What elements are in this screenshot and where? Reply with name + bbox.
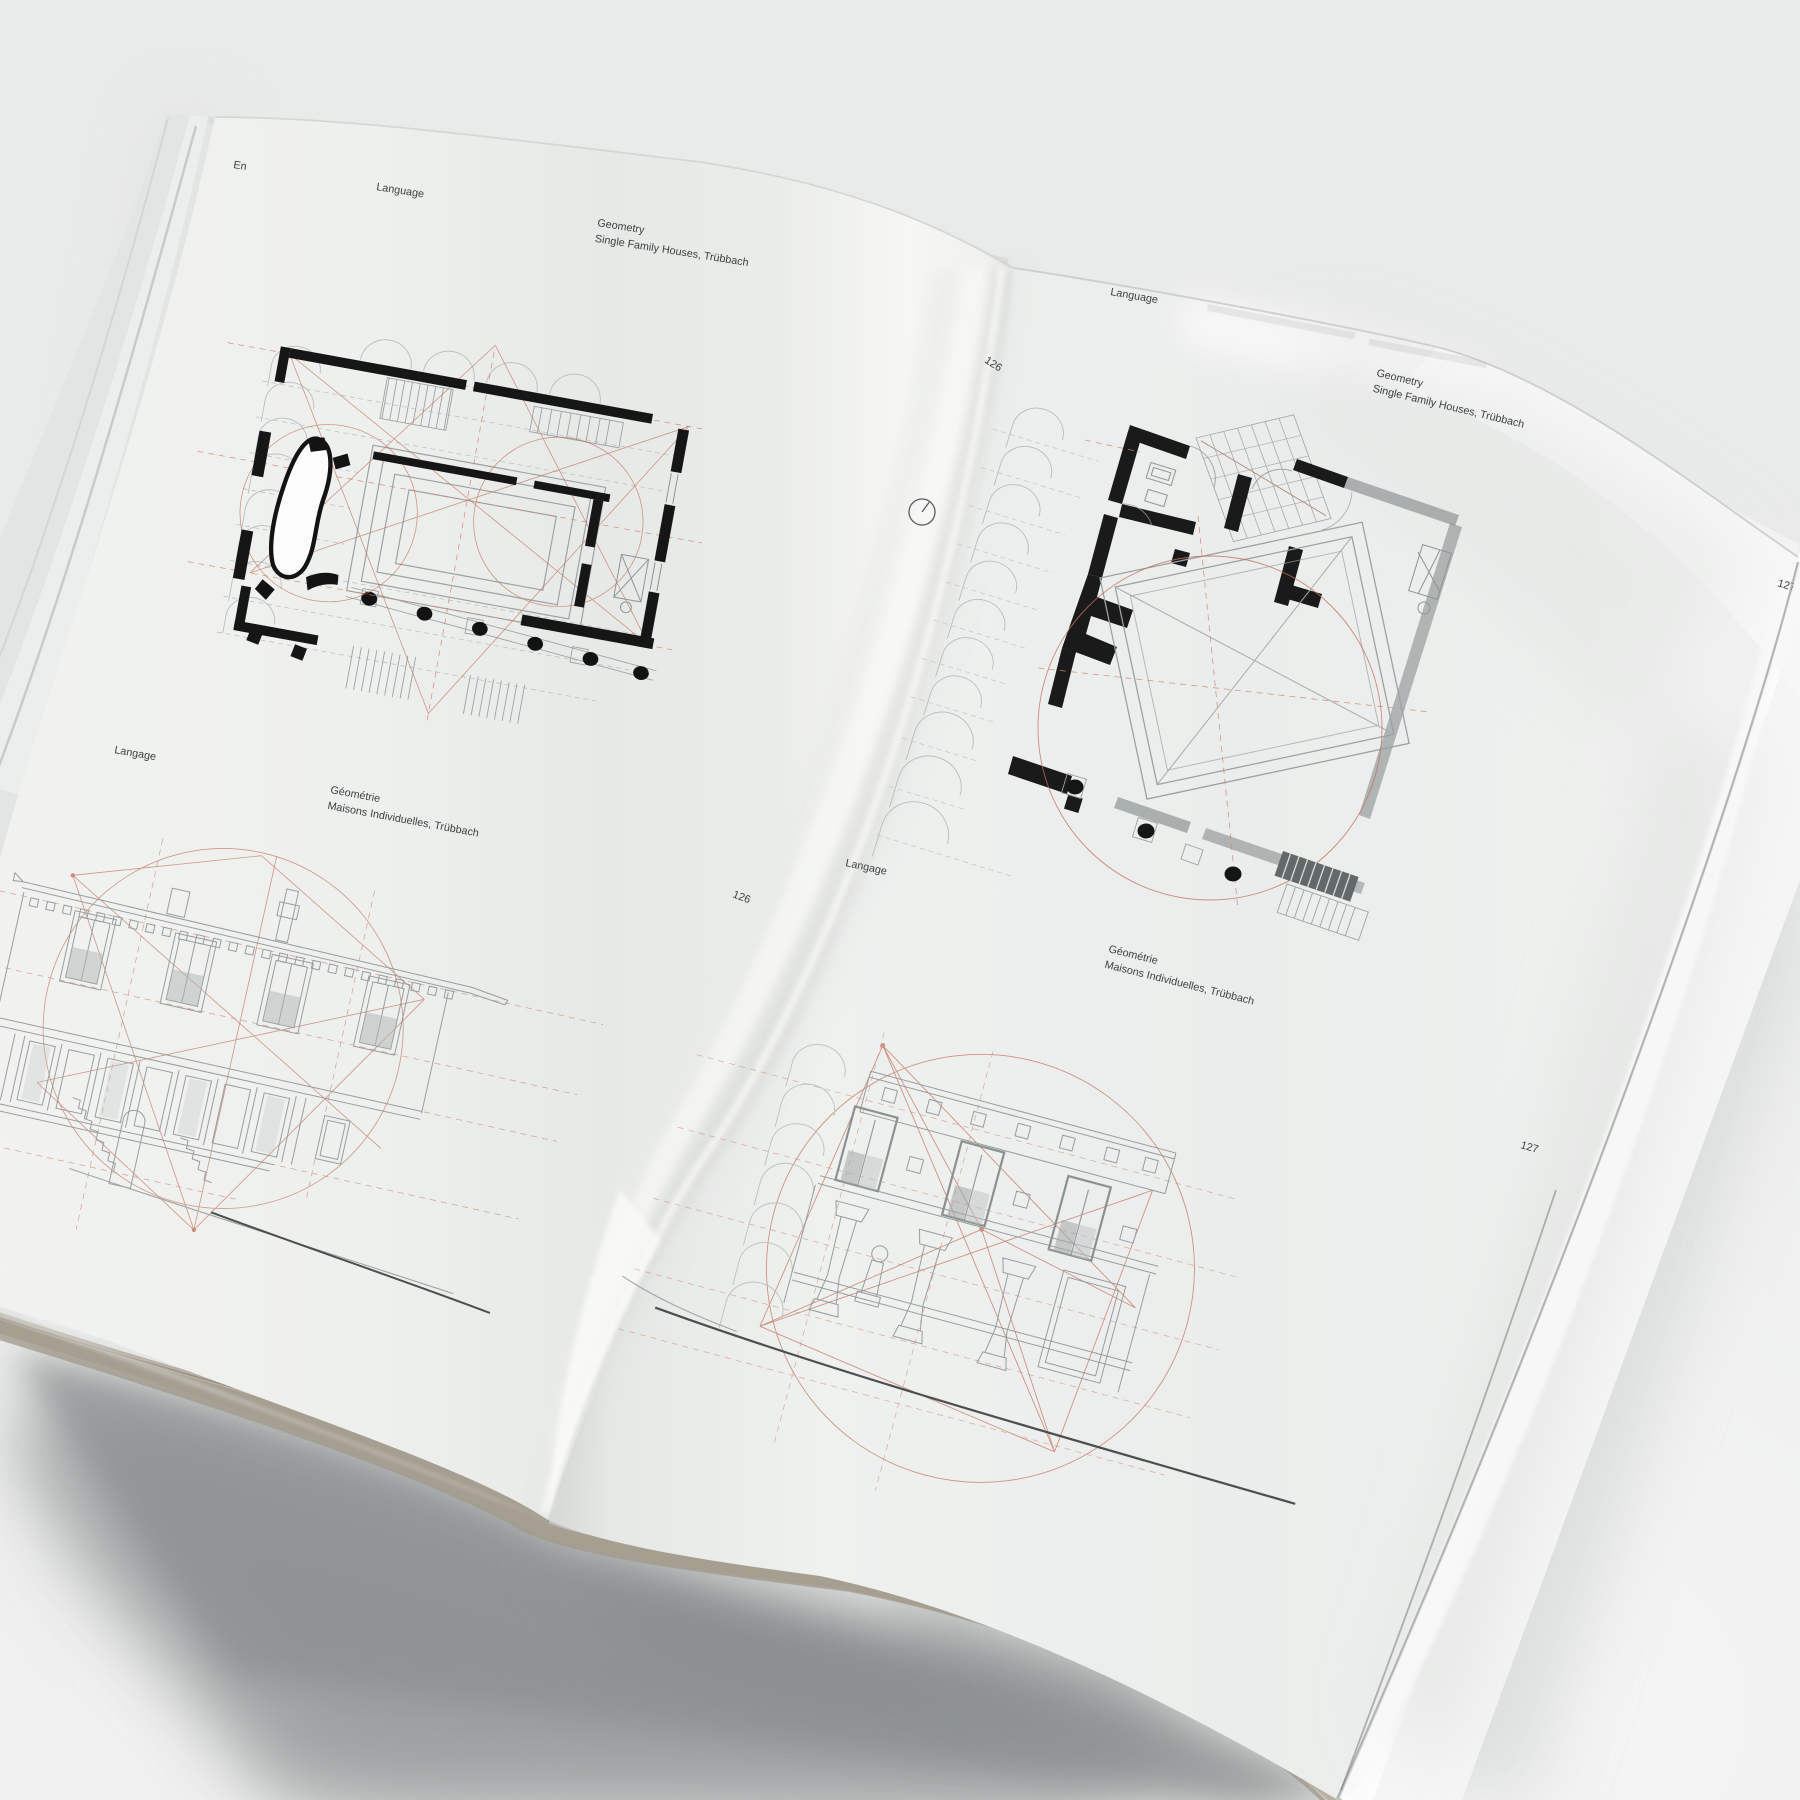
svg-text:En: En xyxy=(233,159,248,173)
